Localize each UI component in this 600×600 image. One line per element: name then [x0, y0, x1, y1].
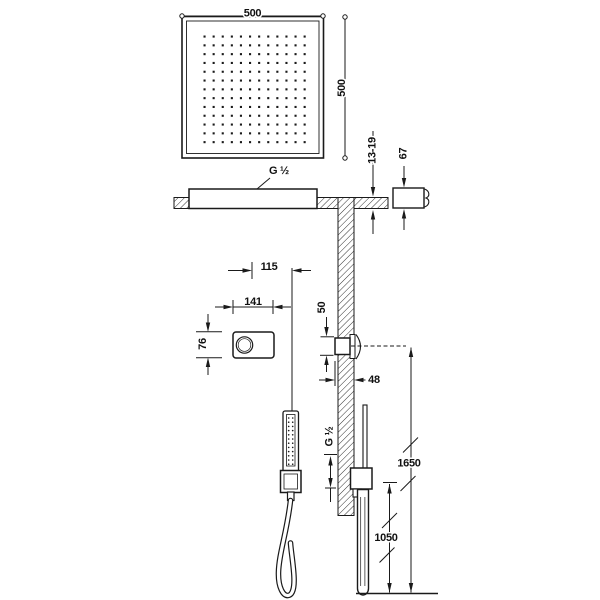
dim-panel-center-offset: 115: [228, 261, 311, 279]
dim-valve-height: 1650: [397, 348, 420, 593]
head-connection-label: G ½: [269, 165, 289, 177]
shower-head-side-view: [189, 189, 317, 209]
dim-support-height: 1050: [374, 483, 397, 593]
dim-arm-flange-height-label: 67: [398, 148, 410, 160]
dim-head-width-label: 500: [244, 8, 262, 20]
wall-outlet-elbow: [351, 468, 373, 489]
drawing-canvas: 500 500 G ½ 13-19 67: [0, 0, 600, 600]
outlet-connection-label: G ½: [324, 426, 336, 446]
dim-valve-height-label: 1650: [397, 458, 420, 470]
slide-rod: [363, 405, 367, 469]
dim-panel-height: 76: [196, 314, 222, 375]
dim-head-height: 500: [336, 15, 348, 160]
dim-support-height-label: 1050: [374, 532, 397, 544]
arm-flange-side-view: [393, 188, 429, 208]
hand-shower-hose: [278, 501, 294, 596]
dim-panel-width-label: 141: [244, 296, 262, 308]
head-connection-callout: G ½: [257, 165, 289, 189]
dim-panel-width: 141: [215, 296, 291, 314]
hand-shower-side-body: [358, 490, 369, 596]
dim-panel-center-offset-label: 115: [261, 261, 278, 273]
dim-ceiling-thickness: 13-19: [367, 131, 379, 234]
shower-head-front-view: [182, 17, 324, 159]
dim-valve-body-height: 50: [316, 302, 334, 372]
technical-drawing: 500 500 G ½ 13-19 67: [0, 0, 600, 600]
control-panel: [233, 332, 274, 358]
dim-panel-height-label: 76: [197, 338, 209, 350]
outlet-connection-callout: G ½: [324, 426, 338, 502]
dim-valve-body-height-label: 50: [316, 302, 328, 314]
hand-shower-front-view: [278, 268, 301, 596]
dim-valve-projection-label: 48: [368, 374, 380, 386]
dim-ceiling-thickness-label: 13-19: [367, 137, 379, 164]
dim-head-height-label: 500: [336, 79, 348, 97]
